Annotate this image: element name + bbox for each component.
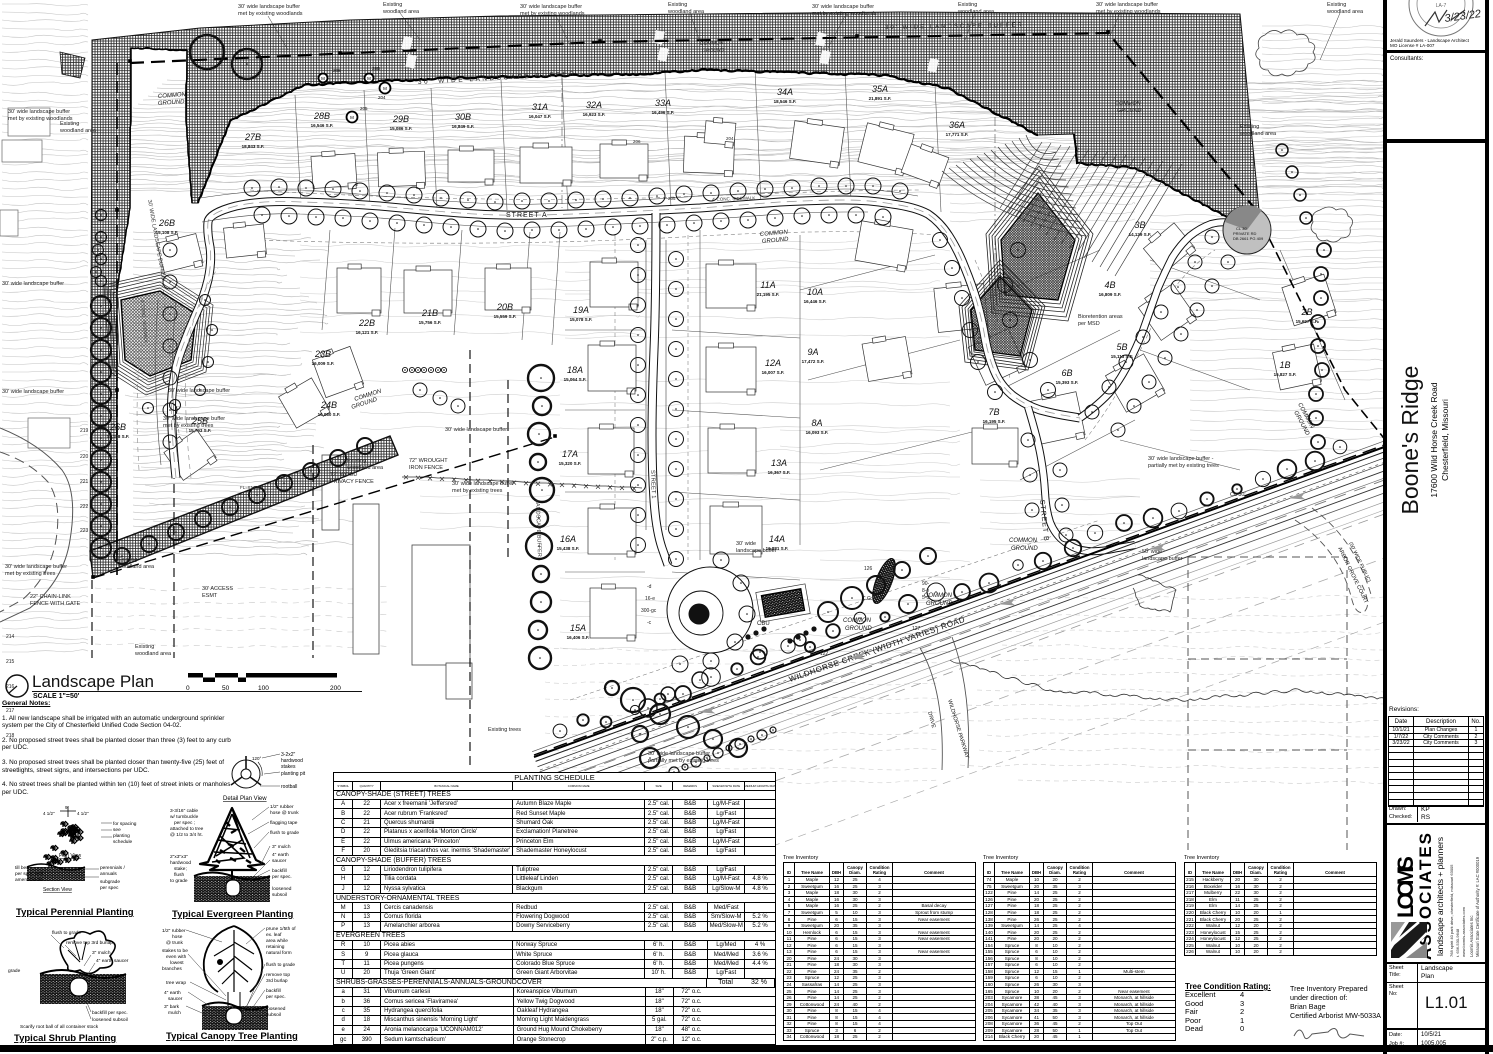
- svg-text:90-: 90-: [922, 581, 930, 587]
- svg-text:DRIVE: DRIVE: [926, 711, 936, 729]
- svg-text:branches: branches: [162, 966, 182, 972]
- svg-text:27B: 27B: [244, 132, 261, 142]
- svg-text:Typical Perennial Planting: Typical Perennial Planting: [16, 907, 134, 918]
- svg-text:11A: 11A: [760, 280, 775, 290]
- svg-text:16,496 S.F.: 16,496 S.F.: [652, 110, 675, 115]
- svg-text:222: 222: [80, 504, 89, 510]
- svg-text:mulch: mulch: [168, 1010, 181, 1016]
- svg-text:3" mulch: 3" mulch: [92, 950, 111, 956]
- svg-text:flush to grade: flush to grade: [266, 962, 295, 968]
- svg-text:GROUND: GROUND: [845, 626, 872, 632]
- svg-text:M: M: [321, 76, 325, 81]
- svg-text:206: 206: [333, 68, 341, 73]
- svg-text:206: 206: [633, 139, 641, 144]
- svg-text:15,438 S.F.: 15,438 S.F.: [557, 546, 580, 551]
- svg-text:15A: 15A: [570, 623, 586, 633]
- svg-text:remove top: remove top: [266, 972, 290, 978]
- svg-text:per spec.: per spec.: [272, 874, 292, 880]
- svg-text:LOOMIS: LOOMIS: [1393, 856, 1418, 918]
- svg-text:30' wide landscape buffer: 30' wide landscape buffer: [8, 109, 70, 115]
- svg-text:M: M: [383, 86, 387, 91]
- svg-text:16,809 S.F.: 16,809 S.F.: [1099, 292, 1122, 297]
- svg-text:22" CHAIN-LINK: 22" CHAIN-LINK: [30, 594, 71, 600]
- svg-text:0: 0: [186, 685, 190, 692]
- svg-text:met by existing woodlands: met by existing woodlands: [520, 11, 585, 17]
- svg-text:26B: 26B: [158, 218, 175, 228]
- svg-text:17,771 S.F.: 17,771 S.F.: [946, 132, 969, 137]
- svg-text:30' wide landscape buffer: 30' wide landscape buffer: [168, 388, 230, 394]
- svg-text:Typical Shrub Planting: Typical Shrub Planting: [14, 1033, 116, 1044]
- svg-text:18A: 18A: [567, 365, 583, 375]
- svg-text:Existing: Existing: [60, 121, 79, 127]
- svg-text:2B: 2B: [1300, 307, 1312, 317]
- svg-text:subsoil: subsoil: [272, 892, 287, 898]
- svg-text:14,129 S.F.: 14,129 S.F.: [1129, 232, 1152, 237]
- svg-text:GROUND: GROUND: [926, 601, 953, 607]
- svg-text:-c: -c: [647, 620, 652, 626]
- svg-text:Bioretention areas: Bioretention areas: [1078, 314, 1123, 320]
- svg-text:13A: 13A: [771, 458, 787, 468]
- svg-text:rootball: rootball: [281, 784, 297, 790]
- svg-text:16,546 S.F.: 16,546 S.F.: [311, 123, 334, 128]
- svg-text:15,108 S.F.: 15,108 S.F.: [107, 434, 130, 439]
- svg-text:remove top 3rd burlap: remove top 3rd burlap: [66, 940, 113, 946]
- svg-text:6B: 6B: [1061, 368, 1072, 378]
- svg-text:3-3/16" cable: 3-3/16" cable: [170, 808, 198, 814]
- svg-text:met by existing woodlands: met by existing woodlands: [812, 11, 877, 17]
- svg-text:15,086 S.F.: 15,086 S.F.: [390, 126, 413, 131]
- svg-text:DB 2661 PG 409: DB 2661 PG 409: [1233, 236, 1264, 241]
- svg-text:schedule: schedule: [113, 839, 133, 845]
- svg-text:met by existing trees: met by existing trees: [452, 488, 503, 494]
- svg-text:M: M: [350, 115, 354, 120]
- svg-text:1/2" rubber: 1/2" rubber: [162, 928, 186, 934]
- svg-text:223: 223: [80, 528, 89, 534]
- svg-text:NUMBER: NUMBER: [1430, 0, 1452, 2]
- svg-text:WILDHORSE PARKWAY: WILDHORSE PARKWAY: [946, 699, 970, 760]
- svg-text:CL 30': CL 30': [1230, 492, 1246, 498]
- svg-text:woodland area: woodland area: [1326, 9, 1364, 15]
- svg-text:30' wide landscape buffer -: 30' wide landscape buffer -: [648, 751, 714, 757]
- svg-text:30' wide landscape buffer: 30' wide landscape buffer: [2, 281, 64, 287]
- svg-text:-d: -d: [647, 584, 652, 590]
- svg-text:16,047 S.F.: 16,047 S.F.: [529, 114, 552, 119]
- svg-text:even with: even with: [166, 954, 187, 960]
- svg-text:Existing: Existing: [1240, 124, 1259, 130]
- svg-text:72" WOOD: 72" WOOD: [330, 472, 357, 478]
- svg-text:STREET 1: STREET 1: [649, 470, 656, 499]
- svg-text:perennials /: perennials /: [100, 865, 125, 871]
- svg-text:200: 200: [330, 685, 341, 692]
- svg-text:4" earth: 4" earth: [164, 990, 181, 996]
- svg-text:36A: 36A: [949, 120, 965, 130]
- svg-text:stakes to be: stakes to be: [162, 948, 188, 954]
- svg-text:grade: grade: [8, 968, 21, 974]
- svg-text:16,009 S.F.: 16,009 S.F.: [312, 361, 335, 366]
- svg-text:@ trunk: @ trunk: [166, 940, 183, 946]
- svg-text:COMMON: COMMON: [843, 618, 872, 624]
- svg-text:Existing: Existing: [1327, 2, 1346, 8]
- svg-text:10A: 10A: [807, 287, 823, 297]
- svg-text:woodland area: woodland area: [59, 128, 97, 134]
- svg-text:30' wide: 30' wide: [736, 541, 756, 547]
- svg-text:15,827 S.F.: 15,827 S.F.: [1274, 372, 1297, 377]
- svg-text:FENCE WITH GATE: FENCE WITH GATE: [30, 601, 81, 607]
- svg-text:23B: 23B: [314, 349, 331, 359]
- svg-text:loosened subsoil: loosened subsoil: [92, 1017, 128, 1023]
- svg-text:for spacing: for spacing: [113, 821, 137, 827]
- svg-text:12A: 12A: [765, 358, 781, 368]
- svg-text:met by existing woodlands: met by existing woodlands: [238, 11, 303, 17]
- svg-text:flush to grade: flush to grade: [52, 930, 81, 936]
- svg-text:30' wide landscape buffer: 30' wide landscape buffer: [2, 389, 64, 395]
- svg-text:stakes: stakes: [281, 764, 296, 770]
- svg-text:219: 219: [80, 428, 89, 434]
- svg-text:300-gc: 300-gc: [641, 608, 657, 614]
- svg-text:15,756 S.F.: 15,756 S.F.: [419, 320, 442, 325]
- svg-text:16A: 16A: [560, 534, 576, 544]
- svg-text:to grade: to grade: [170, 878, 188, 884]
- svg-text:31A: 31A: [532, 102, 548, 112]
- svg-text:flush to grade: flush to grade: [270, 830, 299, 836]
- svg-text:22B: 22B: [358, 318, 375, 328]
- svg-text:220: 220: [80, 454, 89, 460]
- svg-text:prune 1/5th of: prune 1/5th of: [266, 926, 296, 932]
- svg-text:M: M: [367, 76, 371, 81]
- svg-text:2"x3"x3": 2"x3"x3": [170, 854, 188, 860]
- svg-text:16-e: 16-e: [645, 596, 655, 602]
- svg-text:loosened: loosened: [266, 1006, 286, 1012]
- svg-text:15,064 S.F.: 15,064 S.F.: [564, 377, 587, 382]
- svg-text:8A: 8A: [811, 418, 822, 428]
- svg-text:Existing: Existing: [668, 2, 687, 8]
- svg-text:19A: 19A: [573, 305, 589, 315]
- svg-text:122: 122: [820, 651, 829, 657]
- svg-text:214: 214: [6, 634, 15, 640]
- svg-text:GROUND: GROUND: [702, 47, 725, 54]
- svg-text:4" earth: 4" earth: [272, 852, 289, 858]
- svg-text:landscape architects + planner: landscape architects + planners: [1435, 837, 1445, 956]
- svg-text:4 1/2": 4 1/2": [77, 811, 89, 816]
- svg-text:@ 1/2 to 3/4 ht.: @ 1/2 to 3/4 ht.: [170, 832, 203, 838]
- svg-text:COMMON: COMMON: [1115, 101, 1141, 107]
- svg-text:met by existing trees: met by existing trees: [163, 423, 214, 429]
- svg-text:15,113 S.F.: 15,113 S.F.: [1111, 354, 1134, 359]
- svg-text:16,367 S.F.: 16,367 S.F.: [768, 470, 791, 475]
- svg-text:woodland area: woodland area: [667, 9, 705, 15]
- svg-text:1B: 1B: [1279, 360, 1290, 370]
- svg-text:woodland area: woodland area: [134, 651, 172, 657]
- svg-text:15,393 S.F.: 15,393 S.F.: [1056, 380, 1079, 385]
- svg-text:Existing trees: Existing trees: [488, 727, 521, 733]
- svg-text:5-d: 5-d: [922, 595, 929, 601]
- svg-text:PRIVACY FENCE: PRIVACY FENCE: [330, 479, 374, 485]
- svg-text:www.loomis-associates.com: www.loomis-associates.com: [1461, 906, 1466, 957]
- svg-text:COMMON: COMMON: [700, 40, 724, 47]
- svg-text:3rd burlap: 3rd burlap: [266, 978, 288, 984]
- svg-text:17A: 17A: [562, 449, 578, 459]
- svg-text:205: 205: [360, 106, 368, 111]
- svg-text:30' wide landscape buffer: 30' wide landscape buffer: [812, 4, 874, 10]
- svg-text:backfill per spec.: backfill per spec.: [92, 1010, 128, 1016]
- svg-text:18,546 S.F.: 18,546 S.F.: [774, 99, 797, 104]
- svg-text:area while: area while: [266, 938, 288, 944]
- svg-text:per MSD: per MSD: [1078, 321, 1100, 327]
- svg-text:amendments: amendments: [15, 877, 43, 883]
- svg-text:C.G.: C.G.: [862, 596, 872, 602]
- svg-text:Typical Canopy Tree Planting: Typical Canopy Tree Planting: [166, 1031, 298, 1042]
- svg-text:30' wide landscape buffer: 30' wide landscape buffer: [520, 4, 582, 10]
- svg-text:16,406 S.F.: 16,406 S.F.: [567, 635, 590, 640]
- svg-text:LA-7: LA-7: [1436, 3, 1447, 9]
- svg-text:backfill: backfill: [272, 868, 287, 874]
- svg-text:30' wide landscape buffer: 30' wide landscape buffer: [5, 564, 67, 570]
- svg-text:woodland area: woodland area: [1239, 131, 1277, 137]
- svg-text:29B: 29B: [392, 114, 409, 124]
- svg-text:subsoil: subsoil: [266, 1012, 281, 1018]
- svg-text:30' wide landscape buffer: 30' wide landscape buffer: [238, 4, 300, 10]
- svg-text:woodland area: woodland area: [957, 9, 995, 15]
- svg-text:16,121 S.F.: 16,121 S.F.: [356, 330, 379, 335]
- svg-text:tree wrap: tree wrap: [166, 980, 186, 986]
- svg-text:28B: 28B: [372, 66, 380, 71]
- svg-text:9": 9": [65, 805, 70, 810]
- svg-text:saucer: saucer: [272, 858, 287, 864]
- svg-text:24B: 24B: [320, 400, 337, 410]
- svg-text:1/2" rubber: 1/2" rubber: [270, 804, 294, 810]
- svg-text:hose @ trunk: hose @ trunk: [270, 810, 299, 816]
- svg-text:ESMT: ESMT: [202, 593, 218, 599]
- svg-text:7B: 7B: [988, 407, 999, 417]
- svg-text:35A: 35A: [872, 84, 888, 94]
- svg-text:20B: 20B: [496, 302, 513, 312]
- svg-text:21B: 21B: [421, 308, 438, 318]
- svg-text:16,080 S.F.: 16,080 S.F.: [318, 412, 341, 417]
- svg-text:15,320 S.F.: 15,320 S.F.: [559, 461, 582, 466]
- svg-text:30B: 30B: [455, 112, 471, 122]
- svg-text:met by existing woodlands: met by existing woodlands: [1096, 9, 1161, 15]
- svg-text:Scarify root ball of all conta: Scarify root ball of all container stock: [20, 1024, 99, 1030]
- svg-text:30' wide landscape buffer: 30' wide landscape buffer: [452, 481, 514, 487]
- svg-text:120°: 120°: [252, 756, 262, 761]
- svg-text:Missouri State Certificate of: Missouri State Certificate of Authority …: [1475, 856, 1480, 957]
- svg-text:natural form: natural form: [266, 950, 292, 956]
- svg-text:backfill: backfill: [266, 988, 281, 994]
- svg-text:flagging tape: flagging tape: [270, 820, 298, 826]
- svg-text:126: 126: [864, 566, 873, 572]
- svg-text:annuals: annuals: [100, 871, 117, 877]
- svg-text:Existing: Existing: [958, 2, 977, 8]
- svg-text:221: 221: [80, 479, 89, 485]
- svg-text:FL=614.55: FL=614.55: [240, 485, 262, 490]
- svg-text:till bed: till bed: [15, 865, 29, 871]
- svg-text:26B: 26B: [109, 422, 126, 432]
- svg-text:hardwood: hardwood: [170, 860, 191, 866]
- svg-text:COMMON: COMMON: [1009, 538, 1038, 544]
- svg-text:127: 127: [912, 626, 921, 632]
- svg-text:woodland area: woodland area: [117, 564, 155, 570]
- svg-text:16,923 S.F.: 16,923 S.F.: [583, 112, 606, 117]
- svg-text:Existing: Existing: [135, 644, 154, 650]
- svg-text:15,559 S.F.: 15,559 S.F.: [494, 314, 517, 319]
- svg-text:CBU: CBU: [757, 621, 770, 627]
- svg-text:planting: planting: [113, 833, 130, 839]
- svg-text:STREET A: STREET A: [506, 212, 548, 219]
- svg-text:LANDSCAPE BUFFER: LANDSCAPE BUFFER: [534, 500, 542, 557]
- svg-text:landscape buffer: landscape buffer: [736, 548, 777, 554]
- svg-text:34A: 34A: [777, 87, 793, 97]
- svg-text:GROUND: GROUND: [1117, 108, 1141, 114]
- svg-text:met by existing trees: met by existing trees: [5, 571, 56, 577]
- svg-text:18,843 S.F.: 18,843 S.F.: [242, 144, 265, 149]
- svg-text:loosened: loosened: [272, 886, 292, 892]
- svg-text:4 1/2": 4 1/2": [43, 811, 55, 816]
- svg-text:30' wide landscape buffer -: 30' wide landscape buffer -: [1148, 456, 1214, 462]
- svg-text:100: 100: [258, 685, 269, 692]
- svg-text:hose: hose: [172, 934, 183, 940]
- svg-text:17,472 S.F.: 17,472 S.F.: [802, 359, 825, 364]
- svg-text:15,078 S.F.: 15,078 S.F.: [570, 317, 593, 322]
- svg-text:lowest: lowest: [170, 960, 184, 966]
- svg-text:landscape buffer: landscape buffer: [1142, 556, 1183, 562]
- svg-text:5B: 5B: [1116, 342, 1127, 352]
- svg-text:30' wide landscape buffer: 30' wide landscape buffer: [163, 416, 225, 422]
- svg-text:16,849 S.F.: 16,849 S.F.: [452, 124, 475, 129]
- svg-text:GROUND: GROUND: [158, 99, 186, 107]
- svg-text:21,891 S.F.: 21,891 S.F.: [869, 96, 892, 101]
- svg-text:16,195 S.F.: 16,195 S.F.: [983, 419, 1006, 424]
- svg-text:28B: 28B: [313, 111, 330, 121]
- svg-text:9A: 9A: [807, 347, 818, 357]
- svg-text:30' wide landscape buffer: 30' wide landscape buffer: [1096, 2, 1158, 8]
- svg-text:205: 205: [668, 196, 676, 201]
- svg-text:per spec ;: per spec ;: [174, 820, 195, 826]
- svg-text:Section View: Section View: [43, 887, 72, 893]
- svg-text:33A: 33A: [655, 98, 671, 108]
- svg-text:saucer: saucer: [168, 996, 183, 1002]
- svg-text:768 spirit 40 park drive, ches: 768 spirit 40 park drive, chesterfield, …: [1449, 864, 1454, 957]
- svg-text:16,093 S.F.: 16,093 S.F.: [806, 430, 829, 435]
- svg-text:15,697 S.F.: 15,697 S.F.: [1296, 319, 1319, 324]
- svg-text:Loomis Associates Inc: Loomis Associates Inc: [1469, 916, 1474, 957]
- svg-text:72" WROUGHT: 72" WROUGHT: [409, 458, 448, 464]
- svg-text:8-e: 8-e: [922, 588, 929, 594]
- svg-text:Existing: Existing: [118, 557, 137, 563]
- svg-text:30' wide landscape buffer: 30' wide landscape buffer: [445, 427, 507, 433]
- svg-text:per spec: per spec: [100, 885, 119, 891]
- svg-text:4B: 4B: [1104, 280, 1115, 290]
- svg-text:30' ACCESS: 30' ACCESS: [202, 586, 233, 592]
- svg-text:Typical Evergreen Planting: Typical Evergreen Planting: [172, 909, 293, 920]
- svg-text:IRON FENCE: IRON FENCE: [409, 465, 443, 471]
- svg-text:21,195 S.F.: 21,195 S.F.: [757, 292, 780, 297]
- svg-text:204: 204: [726, 136, 734, 141]
- svg-text:t. 636-530-9648: t. 636-530-9648: [1455, 928, 1460, 957]
- svg-text:stake;: stake;: [174, 866, 187, 872]
- svg-text:3" bark: 3" bark: [164, 1004, 180, 1010]
- svg-text:per spec.: per spec.: [266, 994, 286, 1000]
- svg-text:32A: 32A: [586, 100, 602, 110]
- svg-text:215: 215: [6, 659, 15, 665]
- svg-text:subgrade: subgrade: [100, 879, 120, 885]
- svg-text:attached to tree: attached to tree: [170, 826, 204, 832]
- svg-text:w/ turnbuckle: w/ turnbuckle: [170, 814, 199, 820]
- svg-text:16,007 S.F.: 16,007 S.F.: [762, 370, 785, 375]
- svg-text:flush: flush: [174, 872, 184, 878]
- svg-text:50: 50: [222, 685, 230, 692]
- svg-text:see: see: [113, 828, 121, 833]
- svg-text:woodland area: woodland area: [346, 465, 384, 471]
- svg-text:Existing: Existing: [383, 2, 402, 8]
- svg-text:3" mulch: 3" mulch: [272, 844, 291, 850]
- svg-text:partially met by existing tree: partially met by existing trees: [1148, 463, 1219, 469]
- svg-text:per spec with: per spec with: [15, 871, 44, 877]
- svg-text:planting pit: planting pit: [281, 771, 306, 777]
- svg-text:partially met by existing tree: partially met by existing trees: [648, 758, 719, 764]
- svg-text:3B: 3B: [1134, 220, 1145, 230]
- svg-text:4" earth saucer: 4" earth saucer: [96, 958, 129, 964]
- svg-text:retaining: retaining: [266, 944, 285, 950]
- svg-text:GROUND: GROUND: [762, 237, 790, 245]
- svg-text:Existing: Existing: [347, 458, 366, 464]
- svg-text:ex. leaf: ex. leaf: [266, 932, 282, 938]
- svg-text:204: 204: [378, 95, 386, 100]
- svg-text:16,446 S.F.: 16,446 S.F.: [804, 299, 827, 304]
- svg-text:3/23/22: 3/23/22: [1444, 8, 1481, 25]
- svg-text:14A: 14A: [769, 534, 785, 544]
- svg-text:GROUND: GROUND: [1011, 546, 1038, 552]
